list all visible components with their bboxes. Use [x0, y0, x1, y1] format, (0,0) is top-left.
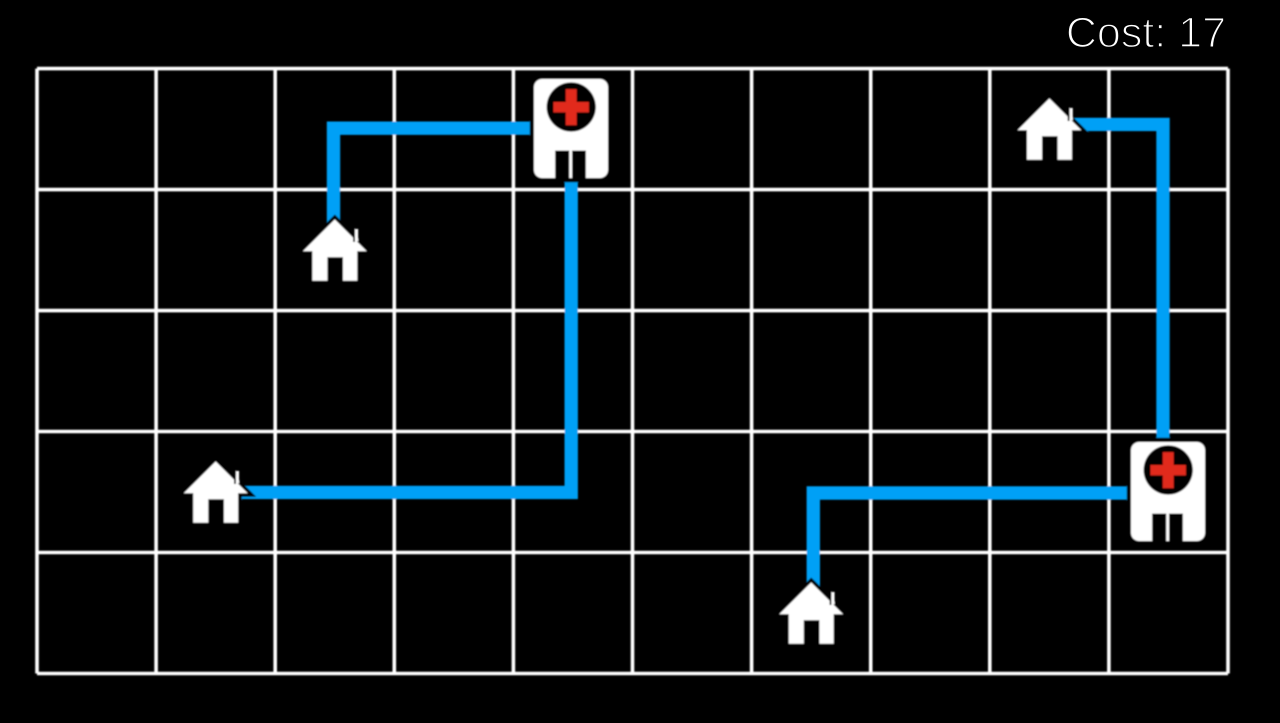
- svg-text:Cost: 17: Cost: 17: [1066, 9, 1226, 57]
